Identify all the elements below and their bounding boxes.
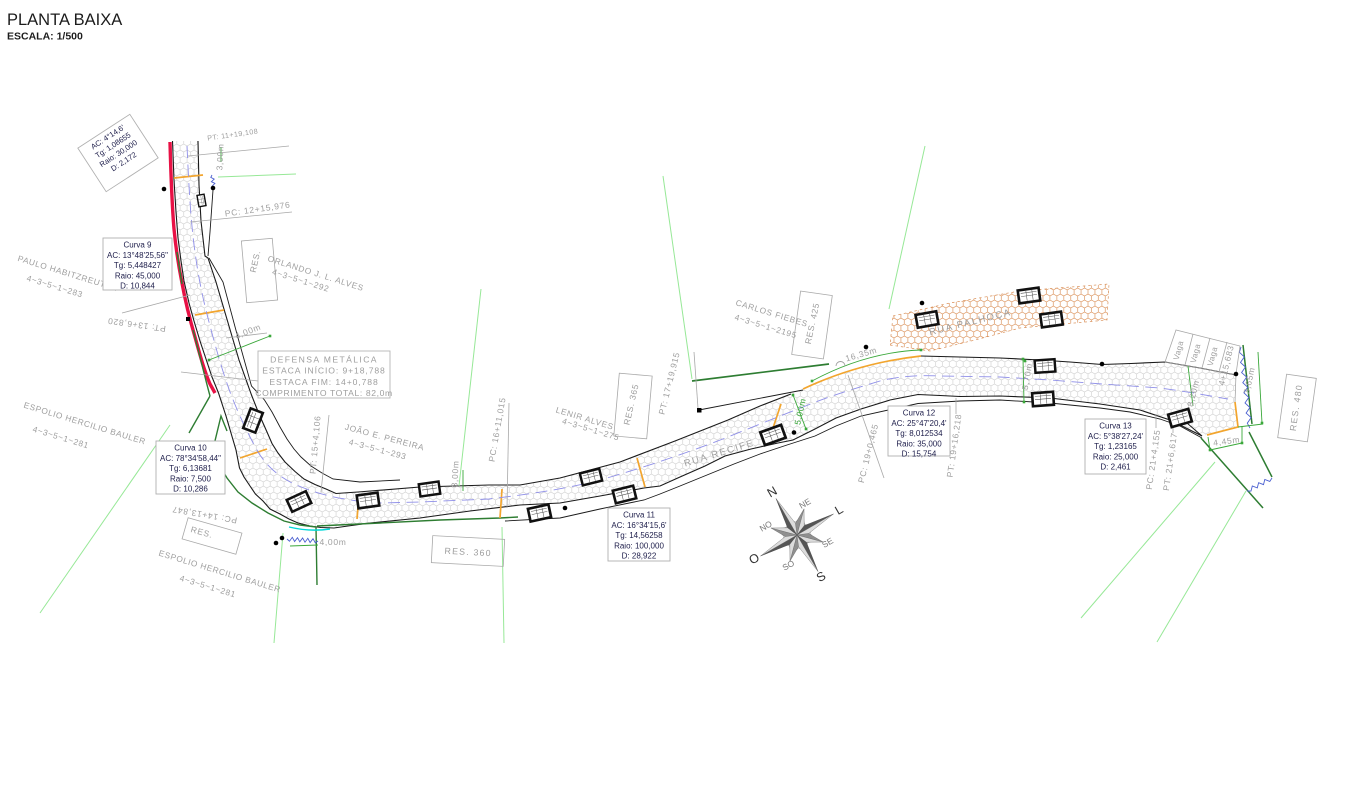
svg-text:Raio: 100,000: Raio: 100,000 bbox=[614, 541, 664, 550]
svg-text:Raio: 35,000: Raio: 35,000 bbox=[896, 439, 942, 448]
svg-text:D: 28,922: D: 28,922 bbox=[622, 552, 657, 561]
svg-text:PC: 21+4,155: PC: 21+4,155 bbox=[1144, 429, 1162, 490]
svg-text:PT: 17+19,915: PT: 17+19,915 bbox=[656, 351, 681, 416]
svg-text:AC: 78°34'58,44": AC: 78°34'58,44" bbox=[160, 454, 221, 463]
svg-text:Tg: 14,56258: Tg: 14,56258 bbox=[615, 531, 663, 540]
svg-text:RES. 365: RES. 365 bbox=[621, 383, 640, 426]
svg-text:Tg: 5,448427: Tg: 5,448427 bbox=[114, 261, 162, 270]
svg-text:Tg: 6,13681: Tg: 6,13681 bbox=[169, 464, 212, 473]
svg-text:PT: 15+4,106: PT: 15+4,106 bbox=[307, 415, 322, 474]
svg-text:4~3~5~1~281: 4~3~5~1~281 bbox=[32, 424, 91, 451]
svg-text:4,00m: 4,00m bbox=[233, 322, 262, 341]
svg-text:Raio: 25,000: Raio: 25,000 bbox=[1093, 452, 1139, 461]
svg-text:RES.: RES. bbox=[248, 249, 263, 273]
svg-text:PLANTA BAIXA: PLANTA BAIXA bbox=[7, 11, 122, 29]
svg-text:PT: 13+6,820: PT: 13+6,820 bbox=[107, 316, 167, 334]
svg-text:PT: 11+19,108: PT: 11+19,108 bbox=[207, 127, 259, 143]
svg-text:4,45m: 4,45m bbox=[1212, 434, 1240, 448]
svg-text:D: 15,754: D: 15,754 bbox=[902, 450, 937, 459]
svg-text:RES.: RES. bbox=[190, 524, 215, 540]
svg-text:AC: 13°48'25,56": AC: 13°48'25,56" bbox=[107, 251, 168, 260]
svg-text:ESTACA FIM: 14+0,788: ESTACA FIM: 14+0,788 bbox=[269, 377, 378, 387]
svg-text:Curva 12: Curva 12 bbox=[903, 409, 936, 418]
svg-text:Raio: 7,500: Raio: 7,500 bbox=[170, 474, 211, 483]
svg-text:3,00m: 3,00m bbox=[449, 460, 460, 488]
svg-text:NE: NE bbox=[797, 496, 813, 511]
svg-text:D: 2,461: D: 2,461 bbox=[1100, 463, 1131, 472]
svg-text:COMPRIMENTO TOTAL: 82,0m: COMPRIMENTO TOTAL: 82,0m bbox=[255, 388, 392, 398]
svg-text:S: S bbox=[814, 569, 828, 585]
svg-text:PC: 16+11,015: PC: 16+11,015 bbox=[486, 396, 507, 462]
svg-text:ESCALA: 1/500: ESCALA: 1/500 bbox=[7, 31, 83, 43]
svg-text:Raio: 45,000: Raio: 45,000 bbox=[115, 271, 161, 280]
svg-text:3,65m: 3,65m bbox=[1241, 366, 1256, 395]
svg-text:SO: SO bbox=[781, 558, 797, 573]
svg-text:D: 10,844: D: 10,844 bbox=[120, 282, 155, 291]
svg-text:DEFENSA METÁLICA: DEFENSA METÁLICA bbox=[270, 355, 378, 365]
svg-text:AC: 25°47'20,4': AC: 25°47'20,4' bbox=[891, 419, 947, 428]
svg-text:Vaga: Vaga bbox=[1172, 340, 1186, 361]
svg-text:Tg: 8,012534: Tg: 8,012534 bbox=[895, 429, 943, 438]
svg-text:RES. 360: RES. 360 bbox=[444, 546, 492, 558]
svg-text:PC: 19+0,465: PC: 19+0,465 bbox=[856, 423, 880, 484]
svg-text:Curva 9: Curva 9 bbox=[123, 241, 152, 250]
svg-text:D: 10,286: D: 10,286 bbox=[173, 485, 208, 494]
svg-text:Vaga: Vaga bbox=[1206, 346, 1220, 367]
svg-text:Vaga: Vaga bbox=[1189, 343, 1203, 364]
svg-text:O: O bbox=[747, 550, 763, 567]
svg-text:NO: NO bbox=[758, 518, 774, 533]
svg-text:PT: 21+6,617: PT: 21+6,617 bbox=[1161, 432, 1179, 492]
svg-text:AC: 5°38'27,24': AC: 5°38'27,24' bbox=[1088, 432, 1144, 441]
svg-text:AC: 16°34'15,6': AC: 16°34'15,6' bbox=[611, 521, 667, 530]
svg-text:L: L bbox=[833, 502, 846, 518]
svg-text:ESTACA INÍCIO: 9+18,788: ESTACA INÍCIO: 9+18,788 bbox=[262, 366, 385, 376]
svg-text:RES. 480: RES. 480 bbox=[1288, 383, 1304, 431]
svg-text:Curva 11: Curva 11 bbox=[623, 511, 655, 520]
svg-text:Curva 13: Curva 13 bbox=[1099, 422, 1132, 431]
svg-text:3,00m: 3,00m bbox=[214, 143, 225, 171]
svg-text:SE: SE bbox=[820, 535, 835, 549]
svg-text:N: N bbox=[765, 484, 780, 501]
svg-text:4,00m: 4,00m bbox=[319, 537, 346, 547]
svg-text:Tg: 1,23165: Tg: 1,23165 bbox=[1094, 442, 1137, 451]
svg-text:Curva 10: Curva 10 bbox=[174, 444, 207, 453]
